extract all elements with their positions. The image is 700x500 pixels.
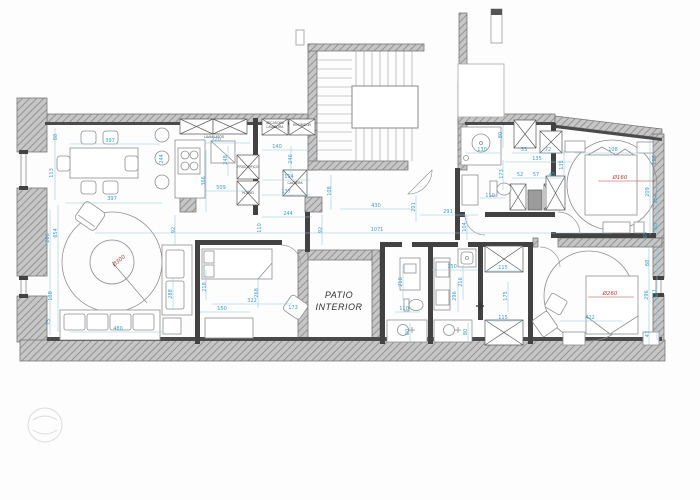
dimension-label: 92	[171, 227, 177, 233]
duct-block	[528, 190, 542, 210]
stool	[155, 175, 169, 189]
chair	[57, 156, 70, 171]
dimension-label: 266	[45, 233, 51, 243]
dimension-label: 72	[545, 147, 551, 153]
dimension-label: 110	[485, 193, 495, 199]
dimension-label: 80	[405, 329, 411, 335]
bed	[586, 276, 638, 334]
cabinet	[436, 290, 449, 305]
fridge-label: FRIGORIFICO	[238, 165, 259, 169]
dimension-label: 126	[652, 155, 658, 165]
dimension-label: 288	[168, 289, 174, 299]
dimension-label: 322	[247, 298, 257, 304]
dimension-label: 137	[281, 189, 291, 195]
bedroom-1	[565, 140, 657, 233]
cabinet	[634, 222, 644, 233]
dimension-label: 397	[105, 138, 115, 144]
dresser	[603, 222, 630, 233]
dimension-label: 480	[113, 326, 123, 332]
dimension-label: 108	[327, 186, 333, 196]
chair	[103, 181, 118, 194]
dimension-label: 216	[398, 277, 404, 287]
dimension-label: 296	[644, 290, 650, 300]
chair	[81, 181, 96, 194]
kitchen-island	[175, 140, 205, 198]
armchair	[74, 200, 106, 232]
wardrobe-icon	[485, 320, 523, 345]
patio-label-line2: INTERIOR	[315, 302, 362, 312]
wall-stub-left	[296, 30, 304, 45]
nightstand	[563, 332, 585, 345]
dimension-label: 150	[447, 264, 457, 270]
hall-closet-icon	[289, 119, 315, 135]
living-room	[60, 200, 192, 340]
dimension-label: 246	[288, 154, 294, 164]
oven-label: HORNO	[242, 191, 254, 195]
dimension-label: 57	[533, 172, 539, 178]
bathroom-door	[465, 215, 485, 235]
dimension-label: 175	[503, 291, 509, 301]
wall-cabinet-icon	[213, 119, 247, 134]
dimension-label: 218	[202, 282, 208, 292]
toilet	[497, 183, 511, 195]
dimension-label: 131	[652, 289, 658, 299]
closet-icon	[514, 120, 536, 148]
dimension-label: 88	[53, 134, 59, 140]
stair-landing	[352, 86, 418, 128]
dimension-label: 509	[216, 185, 226, 191]
bedroom1-door	[558, 212, 580, 234]
wall-stub-top-cap	[491, 9, 502, 15]
dimension-label: 65	[643, 232, 649, 238]
dimension-label: 366	[201, 176, 207, 186]
wall-cabinet-icon	[180, 119, 213, 134]
watermark-logo	[28, 408, 62, 442]
dimension-label: 80	[463, 329, 469, 335]
diameter-label: Ø300	[110, 253, 127, 269]
dimension-label: 110	[257, 223, 263, 233]
bedroom-3	[532, 251, 659, 345]
dimension-label: 422	[585, 315, 595, 321]
dimension-label: 173	[499, 169, 505, 179]
dimension-label: 173	[288, 305, 298, 311]
washer-label: LAVADORA	[267, 125, 285, 129]
dimension-label: 92	[318, 227, 324, 233]
patio-label-line1: PATIO	[325, 290, 353, 300]
dimension-label: 216	[458, 277, 464, 287]
nightstand	[637, 142, 653, 153]
dimension-label: 65	[653, 223, 659, 229]
dimension-label: 104	[462, 222, 468, 232]
dimension-label: 117	[653, 194, 659, 204]
dimension-label: 130	[477, 147, 487, 153]
dimension-label: 654	[53, 228, 59, 238]
dimension-label: 108	[48, 291, 54, 301]
dimension-label: 80	[498, 132, 504, 138]
dimension-label: 201	[411, 202, 417, 212]
dimension-label: 135	[532, 156, 542, 162]
shower	[461, 127, 501, 165]
neighbor-block	[458, 64, 504, 117]
entry-door	[408, 170, 432, 194]
dimension-label: 244	[159, 154, 165, 164]
dimension-label: 150	[217, 306, 227, 312]
dimension-label: 397	[107, 196, 117, 202]
dimension-label: 140	[272, 144, 282, 150]
floor-plan-drawing: PATIO INTERIOR LAVAPLATOS SECADORA LAVAD…	[0, 0, 700, 500]
dimension-label: 291	[443, 209, 453, 215]
dimension-label: 52	[517, 172, 523, 178]
dimension-label: 209	[645, 187, 651, 197]
dresser	[205, 318, 253, 338]
dimension-label: 115	[498, 315, 508, 321]
nightstand	[565, 141, 585, 152]
dimension-label: 154	[284, 174, 294, 180]
dining-area	[57, 131, 138, 194]
dimension-label: 244	[283, 211, 293, 217]
diameter-label: Ø260	[602, 290, 618, 297]
dimension-label: 108	[608, 147, 618, 153]
dimension-label: 430	[371, 203, 381, 209]
dimension-label: 45	[549, 172, 555, 178]
boiler-label: CALDERA	[287, 181, 303, 185]
dimension-label: 110	[399, 306, 409, 312]
side-table	[163, 318, 181, 334]
dimension-label: 53	[521, 147, 527, 153]
cabinet	[462, 175, 478, 205]
dimension-label: 296	[452, 291, 458, 301]
dimension-label: 88	[645, 260, 651, 266]
bathrooms-bottom	[387, 249, 484, 342]
bed	[585, 155, 637, 215]
dimension-label: 115	[498, 265, 508, 271]
stool	[155, 128, 169, 142]
armchair	[532, 311, 558, 338]
floor-plan-canvas: PATIO INTERIOR LAVAPLATOS SECADORA LAVAD…	[0, 0, 700, 500]
dimension-label: 135	[559, 160, 565, 170]
dimension-label: 268	[254, 288, 260, 298]
dimension-label: 1071	[371, 227, 384, 233]
dimension-label: 220	[211, 137, 221, 143]
dimension-label: 47	[645, 331, 651, 337]
hall-label: RECIBIDOR	[293, 123, 311, 127]
dimension-label: 113	[49, 168, 55, 178]
diameter-label: Ø160	[612, 174, 628, 181]
chair	[125, 156, 138, 171]
toilet	[409, 300, 423, 311]
wardrobe-icon	[546, 176, 565, 210]
dimension-label: 75	[46, 319, 52, 325]
dimension-label: 248	[223, 155, 229, 165]
closet-icon	[510, 184, 526, 210]
chair	[81, 131, 96, 144]
